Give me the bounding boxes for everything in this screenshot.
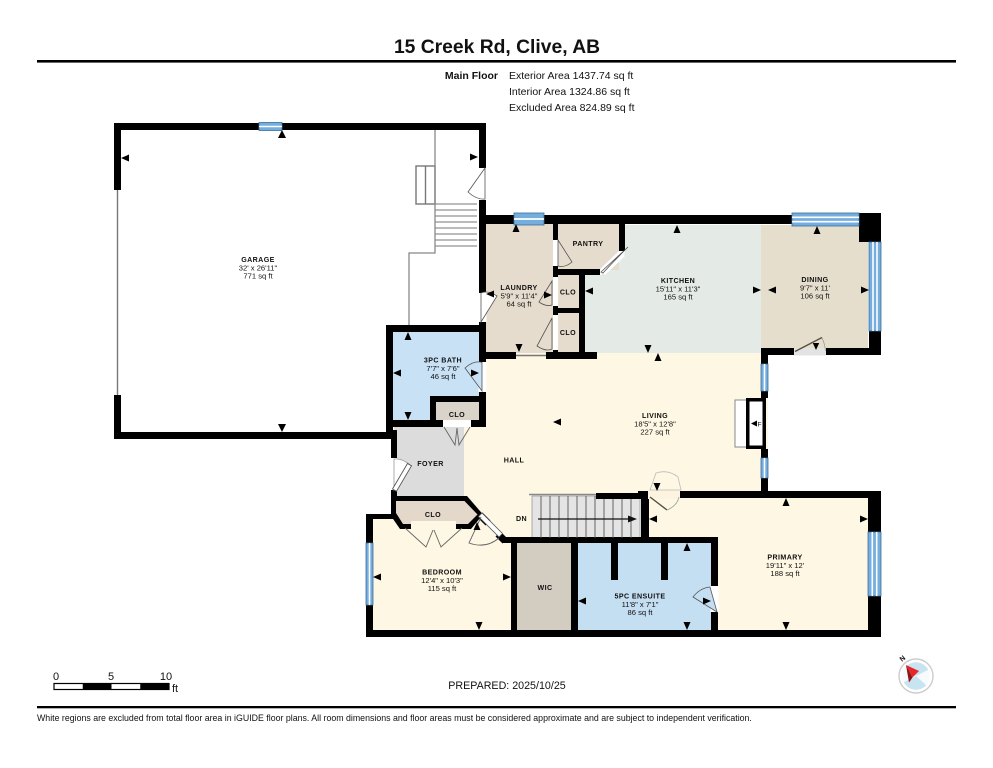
svg-text:FOYER: FOYER (417, 460, 443, 468)
svg-text:46 sq ft: 46 sq ft (431, 372, 457, 381)
svg-text:F: F (758, 422, 762, 429)
svg-text:CLO: CLO (560, 289, 576, 297)
svg-text:Main Floor: Main Floor (445, 70, 498, 82)
svg-text:CLO: CLO (560, 329, 576, 337)
svg-text:115 sq ft: 115 sq ft (428, 584, 457, 593)
svg-text:PANTRY: PANTRY (573, 240, 604, 248)
svg-text:0: 0 (53, 671, 59, 683)
svg-text:15 Creek Rd, Clive, AB: 15 Creek Rd, Clive, AB (394, 37, 600, 58)
svg-text:165 sq ft: 165 sq ft (663, 293, 693, 302)
svg-text:DN: DN (516, 515, 527, 523)
svg-text:WIC: WIC (538, 584, 553, 592)
svg-text:Interior Area 1324.86 sq ft: Interior Area 1324.86 sq ft (509, 86, 630, 98)
svg-text:64 sq ft: 64 sq ft (507, 300, 533, 309)
svg-text:ft: ft (172, 683, 178, 695)
svg-text:CLO: CLO (449, 411, 465, 419)
svg-text:PREPARED: 2025/10/25: PREPARED: 2025/10/25 (448, 680, 565, 692)
svg-text:771 sq ft: 771 sq ft (243, 272, 273, 281)
svg-text:Exterior Area 1437.74 sq ft: Exterior Area 1437.74 sq ft (509, 70, 633, 82)
svg-text:10: 10 (160, 671, 172, 683)
svg-text:White regions are excluded fro: White regions are excluded from total fl… (37, 713, 752, 723)
svg-text:HALL: HALL (504, 457, 525, 465)
svg-text:86 sq ft: 86 sq ft (628, 608, 654, 617)
svg-text:188 sq ft: 188 sq ft (770, 569, 800, 578)
svg-text:106 sq ft: 106 sq ft (800, 292, 830, 301)
svg-text:CLO: CLO (425, 511, 441, 519)
svg-text:Excluded Area 824.89 sq ft: Excluded Area 824.89 sq ft (509, 102, 635, 114)
svg-text:5: 5 (108, 671, 114, 683)
svg-text:227 sq ft: 227 sq ft (640, 428, 670, 437)
